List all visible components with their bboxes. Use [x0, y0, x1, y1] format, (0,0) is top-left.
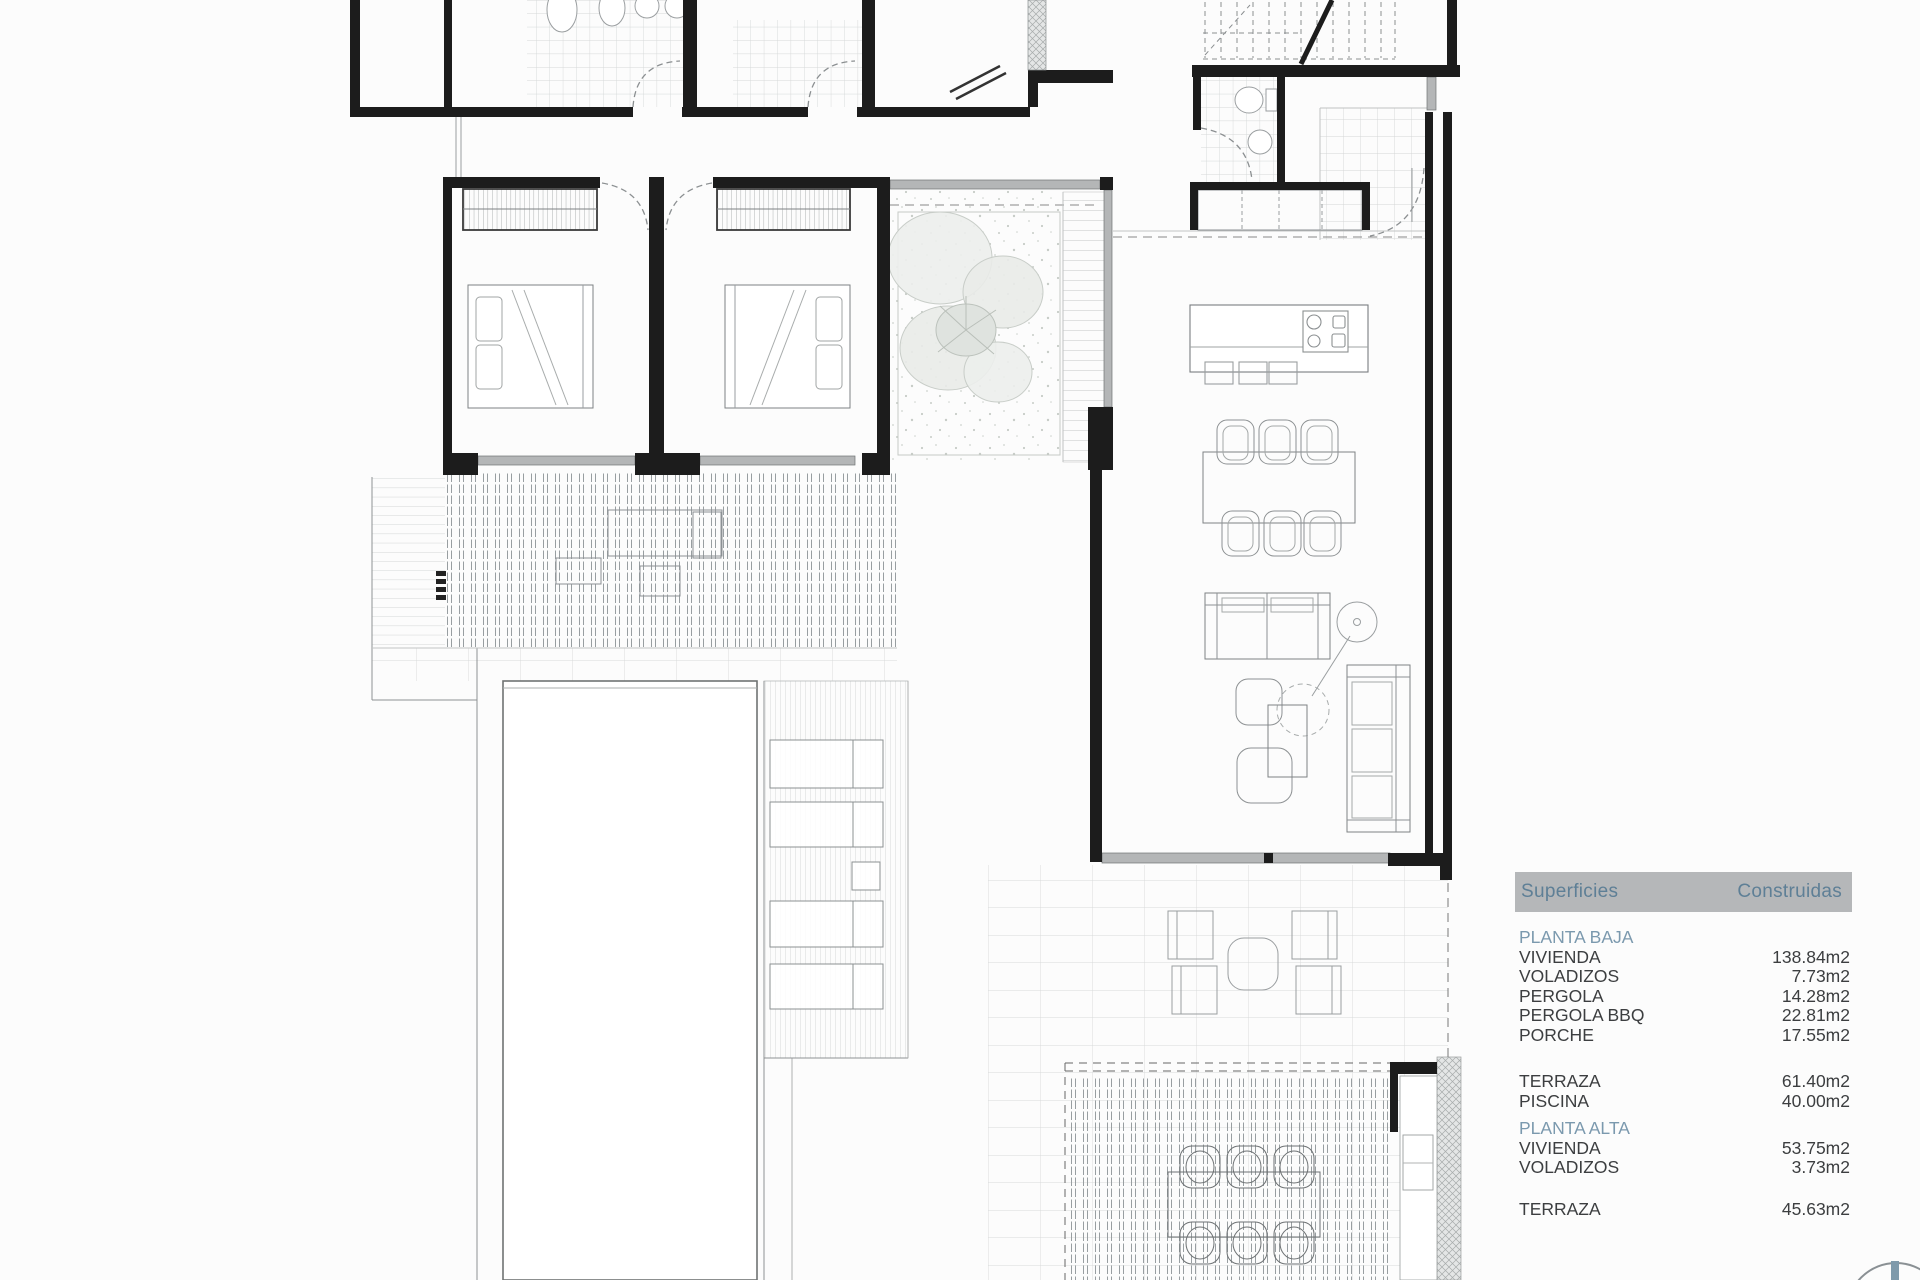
bed-1	[468, 285, 593, 408]
bedroom-1-slider	[478, 456, 635, 465]
surface-areas-table: Superficies Construidas PLANTA BAJA VIVI…	[1515, 872, 1852, 1219]
table-row: PERGOLA14.28m2	[1515, 987, 1852, 1007]
floor-plan-sheet: Superficies Construidas PLANTA BAJA VIVI…	[0, 0, 1920, 1280]
surface-table-header: Superficies Construidas	[1515, 872, 1852, 912]
kitchen-island	[1190, 305, 1368, 384]
living-room-slider	[1102, 853, 1390, 863]
side-terrace-tiles	[372, 477, 445, 648]
pool-basin	[503, 681, 757, 1280]
table-row: TERRAZA45.63m2	[1515, 1200, 1852, 1220]
table-row: PERGOLA BBQ22.81m2	[1515, 1006, 1852, 1026]
pergola	[436, 472, 897, 648]
table-row: PISCINA40.00m2	[1515, 1092, 1852, 1112]
table-row: VIVIENDA53.75m2	[1515, 1139, 1852, 1159]
table-row: PORCHE17.55m2	[1515, 1026, 1852, 1046]
table-row: VOLADIZOS7.73m2	[1515, 967, 1852, 987]
table-row: PLANTA BAJA	[1515, 928, 1852, 948]
header-construidas: Construidas	[1737, 881, 1842, 903]
bathroom-2-tiles	[733, 20, 862, 107]
compass-needle	[1891, 1261, 1899, 1280]
stairs	[1203, 0, 1395, 64]
table-row: TERRAZA61.40m2	[1515, 1072, 1852, 1092]
header-superficies: Superficies	[1521, 881, 1618, 903]
bedroom-2-slider	[700, 456, 855, 465]
deck-side-table	[852, 862, 880, 890]
pouf	[1236, 679, 1282, 725]
sofa	[1347, 665, 1410, 832]
dining-set	[1203, 420, 1355, 556]
bbq-counter	[1390, 1057, 1461, 1280]
walkway-glass	[1104, 190, 1112, 407]
stairs-break-line	[1301, 0, 1332, 64]
entry-window	[1427, 77, 1436, 110]
section-wall-hatch	[1028, 0, 1046, 70]
bed-2	[725, 285, 850, 408]
pouf	[1237, 748, 1292, 803]
entry-hall-tiles	[1320, 108, 1427, 240]
surface-table-rows: PLANTA BAJA VIVIENDA138.84m2 VOLADIZOS7.…	[1515, 928, 1852, 1219]
loveseat	[1205, 593, 1330, 659]
table-row: PLANTA ALTA	[1515, 1119, 1852, 1139]
table-row: VOLADIZOS3.73m2	[1515, 1158, 1852, 1178]
terrace-band-tiles	[372, 648, 897, 681]
pergola-bbq	[1065, 1057, 1461, 1280]
coffee-table	[1268, 705, 1307, 777]
table-row: VIVIENDA138.84m2	[1515, 948, 1852, 968]
aseo-sink	[1248, 130, 1272, 154]
floor-lamp	[1277, 602, 1377, 736]
aseo-toilet	[1235, 87, 1277, 113]
courtyard-glass	[890, 180, 1100, 189]
entrance-slider	[950, 66, 1006, 99]
living-room-furniture	[1205, 593, 1410, 832]
